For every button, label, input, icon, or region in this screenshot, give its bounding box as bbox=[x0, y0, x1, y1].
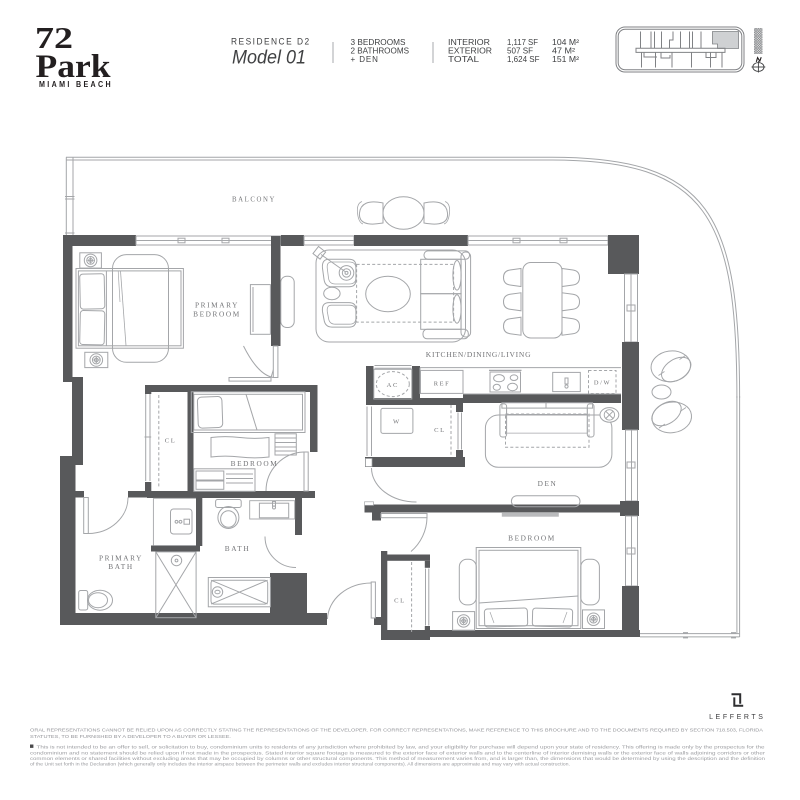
svg-text:condominium and no statement s: condominium and no statement should be r… bbox=[30, 750, 766, 755]
svg-text:CL: CL bbox=[165, 438, 177, 445]
svg-text:+ DEN: + DEN bbox=[351, 55, 379, 64]
svg-text:151 M²: 151 M² bbox=[552, 55, 579, 64]
svg-text:1,624 SF: 1,624 SF bbox=[507, 55, 540, 64]
svg-text:BEDROOM: BEDROOM bbox=[193, 310, 241, 319]
svg-text:DEN: DEN bbox=[538, 479, 558, 488]
svg-text:BALCONY: BALCONY bbox=[232, 197, 276, 204]
svg-text:D/W: D/W bbox=[594, 380, 611, 387]
svg-text:BATH: BATH bbox=[108, 562, 133, 571]
svg-text:TOTAL: TOTAL bbox=[448, 55, 480, 64]
svg-text:REF: REF bbox=[434, 381, 451, 388]
svg-text:MIAMI BEACH: MIAMI BEACH bbox=[39, 80, 113, 89]
svg-text:KITCHEN/DINING/LIVING: KITCHEN/DINING/LIVING bbox=[426, 350, 532, 359]
svg-text:This is not intended to be an: This is not intended to be an offer to s… bbox=[37, 745, 766, 750]
svg-text:ORAL REPRESENTATIONS CANNOT BE: ORAL REPRESENTATIONS CANNOT BE RELIED UP… bbox=[30, 727, 764, 732]
svg-text:of the Unit set forth in the D: of the Unit set forth in the Declaration… bbox=[30, 762, 570, 767]
svg-text:STATUTES, TO BE FURNISHED BY A: STATUTES, TO BE FURNISHED BY A DEVELOPER… bbox=[30, 734, 231, 739]
svg-text:LEFFERTS: LEFFERTS bbox=[709, 714, 765, 721]
svg-text:BEDROOM: BEDROOM bbox=[508, 534, 556, 543]
svg-text:PRIMARY: PRIMARY bbox=[195, 301, 239, 310]
svg-text:BATH: BATH bbox=[225, 544, 250, 553]
svg-text:Model 01: Model 01 bbox=[232, 47, 306, 69]
svg-text:CL: CL bbox=[434, 427, 446, 434]
svg-text:AC: AC bbox=[387, 382, 399, 389]
svg-text:CL: CL bbox=[394, 598, 406, 605]
svg-text:W: W bbox=[393, 419, 401, 426]
svg-text:BEDROOM: BEDROOM bbox=[231, 459, 279, 468]
svg-text:common elements or shared faci: common elements or shared facilities wit… bbox=[30, 756, 766, 761]
